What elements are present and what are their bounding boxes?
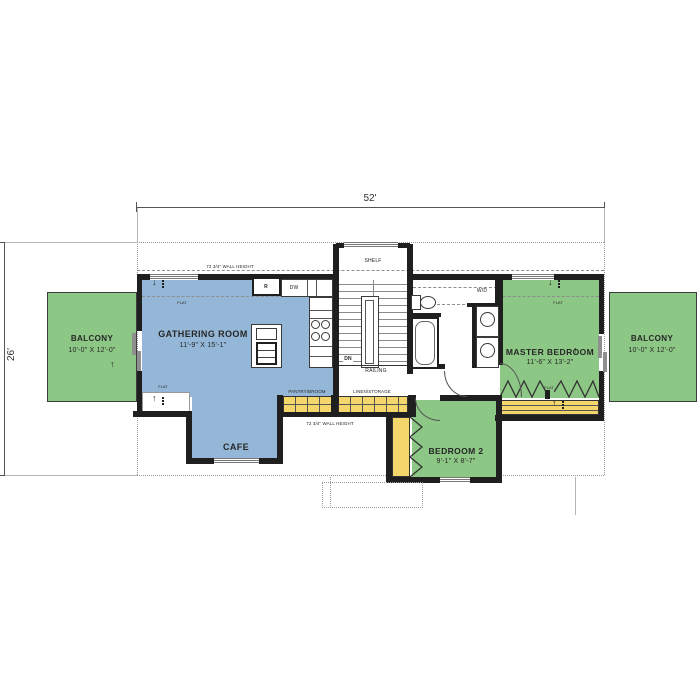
pantry-label: PANTRY/BROOM — [288, 389, 325, 395]
closet-rod-zigzag — [408, 417, 424, 477]
dimension-line-width — [137, 207, 604, 208]
gathering-room-label: GATHERING ROOM — [158, 329, 247, 341]
size-callout-icon — [562, 401, 564, 409]
railing-label: RAILING — [364, 368, 387, 375]
linen-label: LINEN/STORAGE — [353, 389, 391, 395]
bedroom2-size: 9'-1" x 8'-7" — [436, 457, 475, 466]
master-bedroom-size: 11'-6" x 13'-2" — [527, 358, 574, 367]
stove-burner — [311, 320, 320, 329]
wall-segment — [386, 412, 392, 483]
stove-burner — [311, 332, 320, 341]
dimension-line-depth — [4, 242, 5, 475]
refrigerator-label: R — [264, 284, 268, 291]
ceiling-break-line — [503, 296, 599, 297]
cafe-label: CAFE — [223, 442, 249, 454]
wall-segment — [545, 390, 550, 399]
stove-burner — [321, 320, 330, 329]
sink-bowl — [480, 312, 495, 327]
railing-line — [339, 365, 407, 366]
wall-segment — [599, 274, 604, 334]
master-bedroom-label: MASTER BEDROOM — [506, 347, 594, 358]
wall-segment — [599, 371, 604, 421]
stove-burner — [321, 332, 330, 341]
size-callout-icon — [558, 280, 560, 288]
island-sink — [256, 328, 277, 340]
extension-line — [137, 208, 138, 242]
washer-dryer-label: W/D — [477, 288, 487, 295]
closet-rod-zigzag — [554, 379, 599, 399]
sliding-door-panel — [598, 336, 602, 358]
roof-outline-bottom — [137, 475, 604, 476]
wall-segment — [137, 280, 142, 331]
projection-line — [330, 477, 331, 508]
sliding-door-panel — [132, 333, 136, 355]
master-closet-shelf — [500, 400, 599, 415]
balcony-right-label: BALCONY — [631, 334, 673, 344]
wall-height-note-top: 72 3/4" WALL HEIGHT — [206, 264, 253, 270]
door-arrow-icon: ↑ — [573, 346, 578, 355]
flat-ceiling-note: FLAT — [553, 300, 562, 305]
balcony-right-size: 10'-0" x 12'-0" — [628, 346, 675, 355]
window — [440, 477, 470, 483]
wall-segment — [186, 411, 192, 464]
landing-divider — [373, 280, 374, 296]
wall-segment — [133, 411, 192, 417]
projection-line — [575, 477, 576, 515]
door-swing-arc — [444, 371, 467, 397]
wall-segment — [496, 395, 502, 483]
flat-ceiling-note: FLAT — [158, 384, 167, 389]
extension-line — [5, 475, 137, 476]
balcony-left-label: BALCONY — [71, 334, 113, 344]
wall-segment — [333, 244, 339, 280]
wall-segment — [495, 415, 604, 421]
stair-down-label: DN — [343, 356, 353, 363]
extension-line — [5, 242, 137, 243]
flat-ceiling-note: FLAT — [544, 385, 553, 390]
slope-arrow-up-icon: ↑ — [152, 394, 157, 403]
wall-segment — [283, 412, 412, 417]
pantry-cabinet — [283, 396, 333, 413]
sliding-door-panel — [137, 351, 141, 371]
lower-level-projection — [322, 482, 423, 508]
window — [344, 242, 398, 249]
slope-arrow-down-icon: ↓ — [548, 278, 553, 287]
sliding-door-panel — [603, 352, 607, 372]
size-callout-icon — [162, 280, 164, 288]
toilet-bowl — [420, 296, 436, 309]
door-arrow-icon: ↑ — [110, 360, 115, 369]
window — [150, 274, 198, 280]
shelf-label: SHELF — [364, 258, 381, 265]
wall-segment — [407, 244, 413, 280]
gathering-room-size: 11'-9" x 15'-1" — [180, 341, 227, 350]
dishwasher-label: DW — [290, 285, 299, 292]
bedroom2-label: BEDROOM 2 — [428, 446, 483, 457]
wall-height-note-bottom: 72 3/4" WALL HEIGHT — [306, 421, 353, 427]
ceiling-break-line — [137, 270, 604, 271]
overall-depth-dimension: 26' — [6, 348, 17, 361]
sink-bowl — [480, 343, 495, 358]
wall-segment — [410, 274, 604, 280]
wall-segment — [277, 395, 283, 464]
bathtub-basin — [415, 321, 435, 365]
extension-line — [604, 208, 605, 242]
flat-ceiling-note: FLAT — [177, 300, 186, 305]
window — [214, 458, 259, 464]
slope-arrow-up-icon: ↑ — [552, 399, 557, 408]
stair-rail — [365, 300, 374, 364]
linen-cabinet — [338, 396, 408, 413]
balcony-left-size: 10'-0" x 12'-0" — [68, 346, 115, 355]
island-oven — [256, 342, 277, 365]
slope-arrow-down-icon: ↓ — [152, 278, 157, 287]
wall-segment — [440, 395, 502, 401]
overall-width-dimension: 52' — [363, 192, 376, 205]
floor-plan-canvas: 52' 26' BALCONY 10'-0" x 12'-0" BALCONY … — [0, 0, 700, 700]
size-callout-icon — [162, 397, 164, 405]
